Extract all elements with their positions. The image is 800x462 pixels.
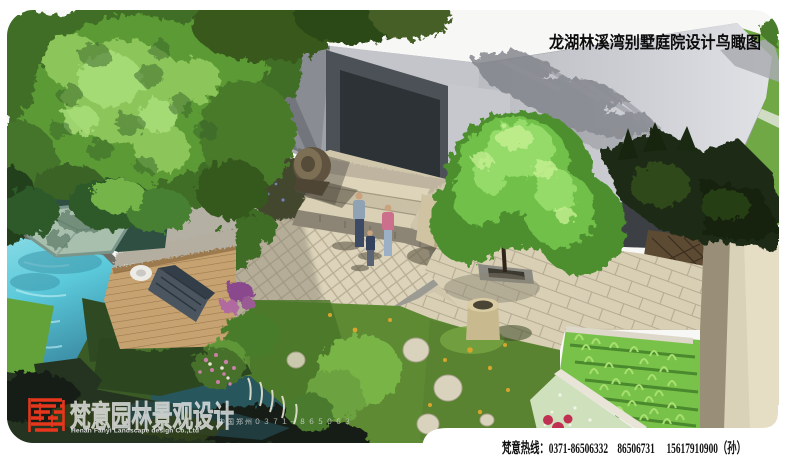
- svg-text:龙湖林溪湾别墅庭院设计鸟瞰图: 龙湖林溪湾别墅庭院设计鸟瞰图: [548, 32, 761, 52]
- svg-text:Henan Fanyi Landscape design C: Henan Fanyi Landscape design Co.,Ltd: [71, 428, 199, 435]
- svg-text:梵意热线：0371-86506332 86506731 1: 梵意热线：0371-86506332 86506731 15617910900（…: [502, 439, 746, 457]
- svg-text:中国郑州０３７１－８６５０６３: 中国郑州０３７１－８６５０６３: [218, 417, 353, 426]
